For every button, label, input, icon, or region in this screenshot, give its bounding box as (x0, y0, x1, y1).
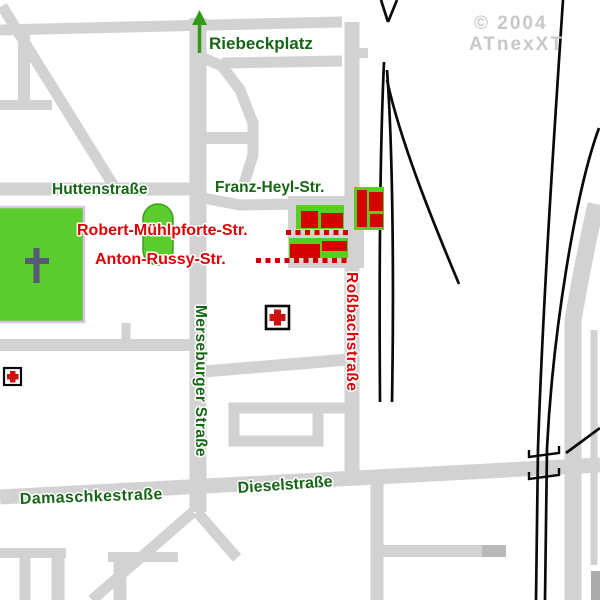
red-cross-marker-1 (266, 306, 289, 329)
city-map: Riebeckplatz Huttenstraße Franz-Heyl-Str… (0, 0, 600, 600)
building-group-b (354, 187, 384, 230)
street-riebeckplatz-branch (201, 57, 253, 190)
cemetery-park (0, 207, 84, 322)
street-network (0, 6, 600, 600)
rail-track-a (380, 62, 384, 402)
label-robert-muehlpforte: Robert-Mühlpforte-Str. (77, 222, 248, 239)
watermark-line1: © 2004 (474, 13, 548, 34)
highway-corner-piece (591, 571, 600, 600)
rail-curve-branch (387, 80, 459, 284)
label-anton-russy: Anton-Russy-Str. (95, 251, 226, 268)
map-canvas: Riebeckplatz Huttenstraße Franz-Heyl-Str… (0, 0, 600, 600)
street-block-loop (234, 408, 318, 441)
label-damaschkestrasse: Damaschkestraße (20, 486, 163, 508)
street-bl-diagonal-right (197, 512, 237, 558)
copyright-watermark: © 2004 ATnexXT (469, 13, 564, 55)
street-riebeckplatz-horizontal (222, 61, 342, 63)
street-top-horizontal (0, 22, 342, 30)
rail-track-b (387, 70, 393, 402)
red-cross-marker-2 (4, 368, 21, 385)
street-slant-connector (198, 359, 354, 372)
building-group-a (296, 205, 344, 229)
label-huttenstrasse: Huttenstraße (52, 181, 148, 198)
rail-v-left (381, 0, 388, 22)
label-rossbachstrasse: Roßbachstraße (343, 272, 360, 391)
watermark-line2: ATnexXT (469, 34, 564, 55)
label-franz-heyl: Franz-Heyl-Str. (215, 179, 324, 196)
rail-v-right (388, 0, 397, 22)
label-merseburger-strasse: Merseburger Straße (192, 305, 209, 457)
building-group-c (289, 238, 348, 258)
rail-track-c (536, 0, 563, 600)
label-riebeckplatz: Riebeckplatz (209, 34, 313, 53)
